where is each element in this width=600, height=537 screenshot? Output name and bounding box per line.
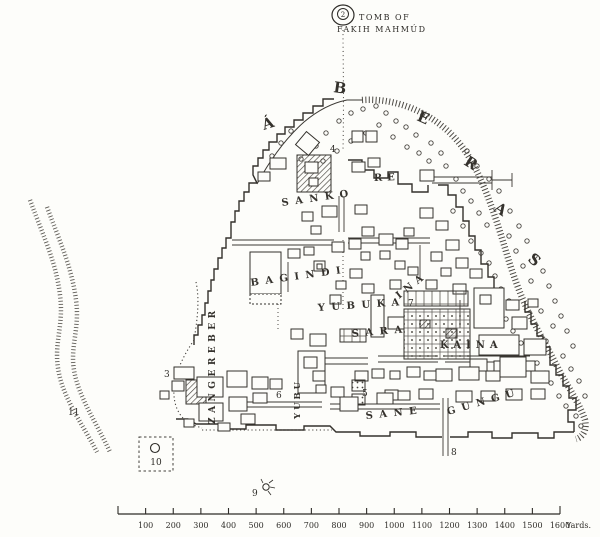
building	[270, 158, 286, 169]
tomb-number: 2	[341, 11, 345, 19]
building	[332, 242, 344, 252]
tree-icon	[577, 379, 581, 383]
scale-unit-label: Yards.	[565, 521, 591, 530]
tree-icon	[417, 151, 421, 155]
building	[459, 367, 479, 380]
scale-tick-label: 700	[304, 521, 319, 530]
building	[340, 397, 358, 411]
ref-number-5: 5	[362, 389, 368, 399]
building	[424, 371, 436, 380]
tree-icon	[349, 111, 353, 115]
building	[288, 249, 300, 258]
tree-icon	[461, 189, 465, 193]
tree-icon	[565, 329, 569, 333]
building	[160, 391, 169, 399]
building	[404, 228, 414, 236]
scale-tick-label: 1000	[384, 521, 404, 530]
building	[331, 387, 344, 397]
tree-icon	[337, 119, 341, 123]
building	[366, 131, 377, 142]
tree-icon	[429, 141, 433, 145]
building	[426, 280, 437, 289]
tree-icon	[564, 404, 568, 408]
building	[506, 300, 519, 310]
building	[500, 357, 526, 377]
scale-tick-label: 1400	[495, 521, 515, 530]
building	[253, 393, 267, 403]
tree-icon	[289, 129, 293, 133]
building	[291, 329, 303, 339]
tree-icon	[377, 123, 381, 127]
tree-icon	[469, 239, 473, 243]
building	[336, 281, 346, 289]
tree-icon	[451, 209, 455, 213]
building	[352, 162, 365, 172]
building	[322, 206, 337, 217]
outer-letter-b: B	[332, 78, 347, 98]
building	[296, 132, 320, 156]
tree-icon	[391, 135, 395, 139]
tree-icon	[279, 141, 283, 145]
tree-icon	[569, 367, 573, 371]
tree-icon	[427, 159, 431, 163]
quarter-label-sara: SARA	[351, 324, 409, 340]
building	[456, 258, 468, 268]
tree-icon	[508, 209, 512, 213]
building	[362, 227, 374, 236]
building	[420, 320, 430, 328]
scale-bar: 1002003004005006007008009001000110012001…	[118, 506, 570, 530]
building	[446, 329, 457, 338]
outer-letter-s: S	[524, 250, 544, 271]
building	[241, 414, 255, 424]
ref-number-4: 4	[330, 145, 336, 155]
scale-tick-label: 900	[359, 521, 374, 530]
tree-icon	[583, 394, 587, 398]
tree-icon	[521, 264, 525, 268]
tree-icon	[551, 324, 555, 328]
building	[352, 131, 363, 142]
building	[528, 299, 538, 307]
tree-icon	[547, 284, 551, 288]
building	[362, 284, 374, 293]
building	[441, 268, 451, 276]
tomb-of-fakih-mahmud: 2 TOMB OF FAKIH MAHMÚD	[332, 5, 427, 150]
compass-circle-icon	[263, 484, 269, 490]
building	[349, 239, 361, 249]
tree-icon	[517, 224, 521, 228]
tree-icon	[439, 151, 443, 155]
tree-icon	[444, 164, 448, 168]
building	[420, 208, 433, 218]
building	[316, 385, 326, 393]
building	[398, 391, 410, 400]
building	[304, 247, 314, 255]
scale-tick-label: 100	[138, 521, 153, 530]
tree-icon	[487, 177, 491, 181]
tree-icon	[404, 125, 408, 129]
building	[407, 367, 420, 377]
tomb-label-line2: FAKIH MAHMÚD	[337, 25, 427, 34]
building-blocks	[160, 131, 549, 431]
building	[512, 317, 527, 329]
building	[304, 357, 317, 368]
tree-icon	[525, 239, 529, 243]
building	[270, 379, 282, 389]
tree-icon	[553, 299, 557, 303]
building	[470, 269, 482, 278]
tree-icon	[384, 111, 388, 115]
tree-icon	[461, 224, 465, 228]
tree-icon	[405, 145, 409, 149]
tree-icon	[557, 394, 561, 398]
tree-icon	[454, 177, 458, 181]
building	[390, 371, 400, 379]
wall-south-east-half	[450, 432, 574, 438]
building	[480, 295, 491, 304]
building	[372, 369, 384, 378]
outer-letter-a1: Á	[259, 113, 277, 134]
quarter-label-zangereber: ZANGEREBER	[208, 306, 218, 424]
building	[302, 212, 313, 221]
tree-icon	[571, 344, 575, 348]
building	[420, 170, 434, 181]
quarter-label-sane: SANE	[365, 405, 424, 422]
building	[380, 251, 390, 259]
scale-tick-label: 500	[248, 521, 263, 530]
quarter-label-kaina: KAINA	[440, 340, 503, 351]
outer-letter-e: E	[414, 107, 432, 128]
ref-number-8: 8	[451, 448, 457, 458]
ref-number-10: 10	[150, 458, 162, 468]
scale-tick-label: 1300	[467, 521, 487, 530]
building	[436, 221, 448, 230]
tree-icon	[394, 119, 398, 123]
building	[313, 371, 325, 381]
scale-tick-label: 1200	[439, 521, 459, 530]
building	[355, 205, 367, 214]
tree-icon	[507, 234, 511, 238]
ref-number-3: 3	[164, 370, 170, 380]
building	[396, 239, 408, 249]
building	[431, 252, 442, 261]
building	[408, 267, 418, 275]
tree-icon	[497, 189, 501, 193]
scale-tick-label: 300	[193, 521, 208, 530]
street-sankore-south	[339, 196, 344, 232]
building	[258, 172, 270, 181]
building	[474, 288, 504, 328]
building	[395, 261, 405, 269]
building	[309, 178, 318, 186]
tree-icon	[541, 269, 545, 273]
tree-icon	[361, 107, 365, 111]
building	[486, 371, 500, 381]
quarter-label-sankore-right: RE	[374, 172, 400, 184]
tree-icon	[477, 211, 481, 215]
scale-tick-label: 200	[166, 521, 181, 530]
building	[419, 389, 433, 399]
building	[361, 252, 370, 260]
river-bank-west	[30, 200, 97, 452]
building	[531, 389, 545, 399]
tomb-label-line1: TOMB OF	[359, 13, 410, 22]
tree-icon	[574, 414, 578, 418]
scale-tick-label: 400	[221, 521, 236, 530]
building	[250, 294, 281, 304]
tree-icon	[529, 279, 533, 283]
tree-icon	[414, 133, 418, 137]
wall-west	[194, 183, 257, 345]
tree-icon	[559, 314, 563, 318]
tree-icon	[539, 309, 543, 313]
ref-number-6: 6	[276, 391, 282, 401]
building	[350, 269, 362, 278]
building	[172, 381, 184, 391]
building	[377, 393, 393, 404]
building	[174, 367, 194, 379]
timbuktu-plan-svg: 2 TOMB OF FAKIH MAHMÚD Á B E R A S	[0, 0, 600, 537]
scale-tick-label: 800	[331, 521, 346, 530]
scale-tick-label: 1100	[412, 521, 432, 530]
building	[310, 334, 326, 346]
building	[229, 397, 247, 411]
building	[524, 339, 546, 355]
legend-circle-icon	[151, 444, 160, 453]
tree-icon	[514, 249, 518, 253]
building	[305, 162, 318, 173]
ref-number-9: 9	[252, 489, 258, 499]
building	[446, 240, 459, 250]
tree-icon	[561, 354, 565, 358]
tree-icon	[469, 199, 473, 203]
compass-9	[261, 479, 275, 495]
building	[379, 234, 393, 245]
scale-tick-label: 600	[276, 521, 291, 530]
tree-icon	[324, 131, 328, 135]
building	[218, 423, 230, 431]
outer-letter-r: R	[461, 152, 482, 174]
quarter-label-yubu: YUBU	[293, 379, 303, 420]
building	[252, 377, 268, 389]
tree-icon	[485, 223, 489, 227]
building	[531, 371, 549, 383]
building	[368, 158, 380, 167]
building	[227, 371, 247, 387]
ref-number-11: 11	[68, 408, 79, 418]
map-canvas: 2 TOMB OF FAKIH MAHMÚD Á B E R A S	[0, 0, 600, 537]
building	[184, 419, 194, 427]
building	[311, 226, 321, 234]
tree-icon	[374, 104, 378, 108]
outer-letter-a2: A	[490, 198, 511, 220]
building	[436, 369, 452, 381]
ref-number-7: 7	[408, 299, 414, 309]
building	[404, 309, 470, 359]
scale-tick-label: 1500	[522, 521, 542, 530]
